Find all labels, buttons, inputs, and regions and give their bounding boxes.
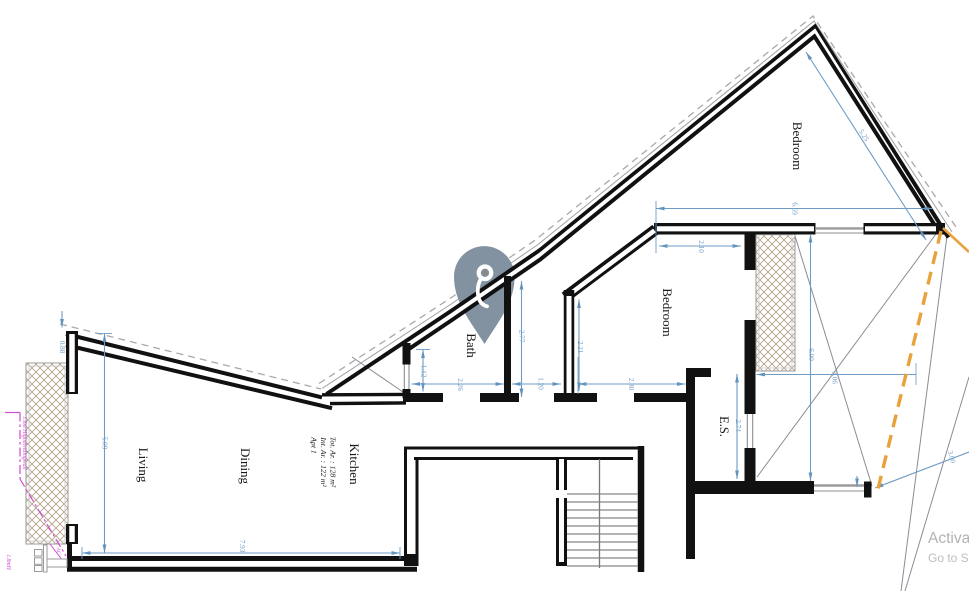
svg-text:Bedroom: Bedroom — [660, 288, 675, 336]
svg-text:2.21: 2.21 — [576, 341, 584, 354]
svg-text:Tot. Ar. : 128 m²: Tot. Ar. : 128 m² — [329, 437, 338, 488]
svg-text:Apt 1: Apt 1 — [310, 436, 319, 454]
svg-text:1.8m Highdividingwall: 1.8m Highdividingwall — [21, 416, 27, 470]
svg-text:Activa: Activa — [928, 530, 969, 547]
svg-text:6.69: 6.69 — [791, 202, 799, 215]
svg-text:7.93: 7.93 — [238, 540, 246, 553]
svg-text:E.S.: E.S. — [717, 416, 731, 437]
svg-text:Dining: Dining — [238, 448, 253, 485]
svg-text:6.00: 6.00 — [807, 348, 815, 361]
svg-text:Bath: Bath — [464, 333, 479, 358]
svg-text:AC: AC — [55, 547, 60, 555]
svg-text:Kitchen: Kitchen — [347, 443, 362, 485]
svg-text:2.10: 2.10 — [697, 240, 705, 253]
svg-text:Living: Living — [136, 448, 151, 483]
svg-text:1.12: 1.12 — [420, 365, 428, 378]
svg-text:2.30: 2.30 — [627, 378, 635, 391]
svg-text:2.74: 2.74 — [734, 419, 742, 432]
svg-text:2.26: 2.26 — [456, 378, 464, 391]
svg-text:5.09: 5.09 — [101, 437, 109, 450]
svg-text:Int. Ar. : 122 m²: Int. Ar. : 122 m² — [319, 436, 328, 487]
svg-text:2.77: 2.77 — [518, 330, 526, 343]
svg-text:1.8mH: 1.8mH — [5, 554, 11, 570]
svg-text:Go to Se: Go to Se — [928, 551, 969, 565]
svg-text:Bedroom: Bedroom — [790, 122, 805, 170]
svg-text:0.88: 0.88 — [58, 341, 66, 354]
svg-text:3.06: 3.06 — [831, 371, 839, 384]
svg-text:1.20: 1.20 — [537, 377, 545, 390]
